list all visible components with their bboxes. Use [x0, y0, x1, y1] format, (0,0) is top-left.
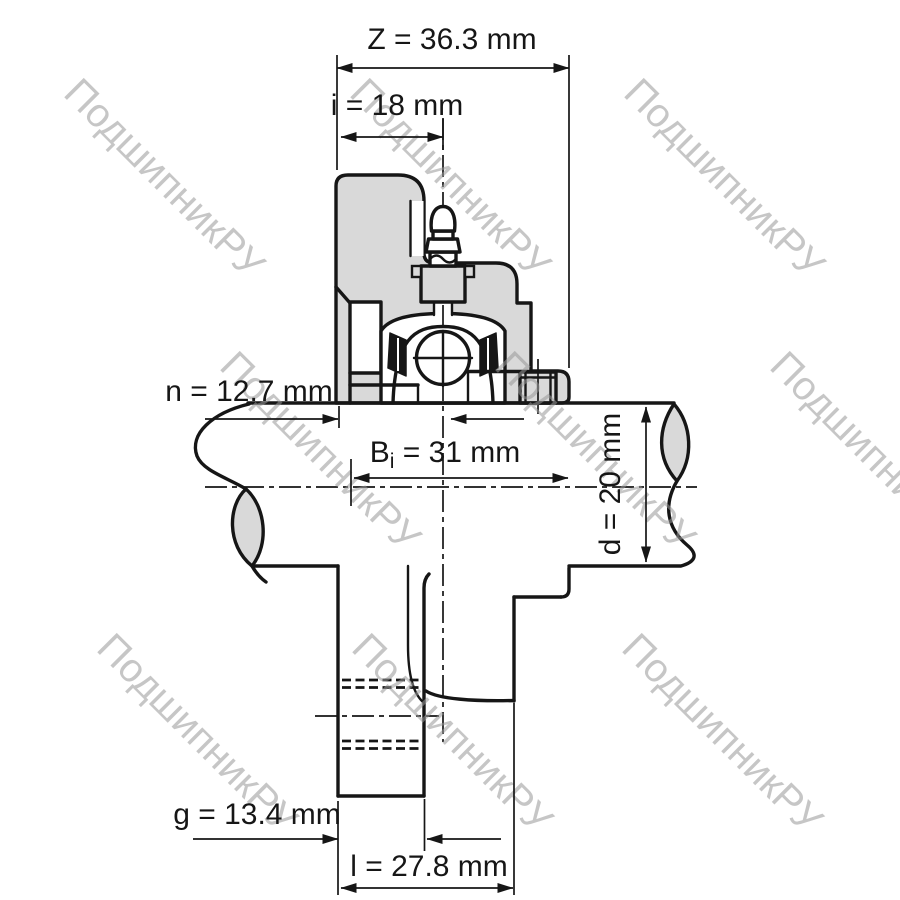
watermark: ПодшипникРУ: [614, 625, 831, 842]
fitting-boss-tab-right: [465, 266, 474, 277]
watermark: ПодшипникРУ: [56, 70, 273, 287]
shaft-break-right-lens: [662, 404, 689, 481]
flange-edge-face: [411, 201, 424, 256]
fitting-boss-tab-left: [412, 266, 421, 277]
fitting-hex: [426, 239, 460, 252]
shaft-break-left-tail: [252, 566, 266, 582]
watermark: ПодшипникРУ: [344, 625, 561, 842]
watermark: ПодшипникРУ: [616, 70, 833, 287]
bearing-unit-technical-drawing: ПодшипникРУ ПодшипникРУ ПодшипникРУ Подш…: [0, 0, 900, 900]
watermark: ПодшипникРУ: [762, 343, 900, 560]
dim-label-z: Z = 36.3 mm: [367, 23, 536, 56]
housing-recess: [350, 302, 381, 373]
shaft-break-left-curve: [195, 404, 249, 489]
fitting-boss: [421, 266, 465, 302]
dim-label-d: d = 20 mm: [594, 413, 627, 556]
dim-label-n: n = 12.7 mm: [165, 375, 333, 408]
shaft-break-left-lens: [232, 489, 263, 566]
sleeve-end-below-shaft: [561, 568, 569, 597]
dim-label-bi-rest: = 31 mm: [394, 436, 520, 469]
flange-lower-body: [315, 566, 569, 796]
dim-label-l: l = 27.8 mm: [350, 850, 508, 883]
dim-label-g: g = 13.4 mm: [173, 798, 341, 831]
dim-label-bi-base: B: [370, 436, 390, 469]
dim-label-bi: Bi = 31 mm: [370, 436, 521, 473]
dim-label-i: i = 18 mm: [331, 89, 464, 122]
